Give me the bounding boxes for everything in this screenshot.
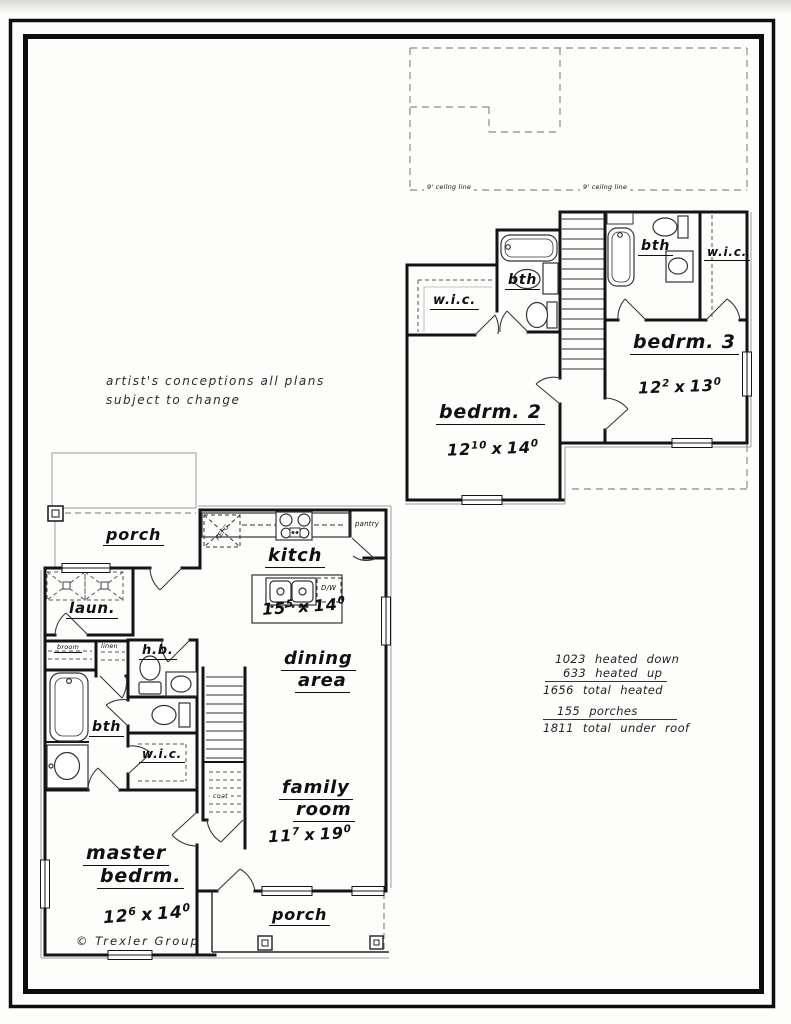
bedrm3-label: bedrm. 3 <box>630 333 739 355</box>
dim-separator: x <box>298 597 311 617</box>
family-room-label-line1: family <box>279 779 353 800</box>
bath2-label: bth <box>505 273 540 290</box>
dim-feet: 12 <box>102 906 129 928</box>
masterbath-sink <box>55 753 80 780</box>
stat-porches: 155 porches <box>543 704 689 718</box>
laundry-label: laun. <box>66 601 118 619</box>
bath-label: bth <box>89 720 124 737</box>
masterbath-tub-faucet-icon <box>67 679 72 684</box>
broom-closet-label: broom <box>54 644 82 653</box>
family-room-label-line2: room <box>293 801 355 822</box>
dim-inches: 0 <box>714 376 723 388</box>
artist-note-line2: subject to change <box>106 391 325 410</box>
masterbath-sink-faucet-icon <box>49 764 53 768</box>
stat-divider-line <box>545 681 667 682</box>
dim-feet: 14 <box>313 595 339 616</box>
stat-heated-down: 1023 heated down <box>543 652 689 666</box>
dim-inches: 2 <box>662 377 671 389</box>
lower-roof-and-offsets <box>41 453 391 958</box>
stairs-upper <box>562 219 604 369</box>
stat-heated-up: 633 heated up <box>543 666 689 680</box>
dim-inches: 6 <box>128 905 137 919</box>
master-bedroom-label-line1: master <box>83 844 169 866</box>
dim-inches: 0 <box>182 901 191 915</box>
dim-separator: x <box>141 905 154 926</box>
wic-bedrm3-label: w.i.c. <box>704 246 750 261</box>
dim-feet: 13 <box>689 376 714 396</box>
coat-closet-label: coat <box>210 793 231 800</box>
dining-label-line1: dining <box>281 650 356 671</box>
halfbath-sink <box>171 676 191 692</box>
bath3-toilet-tank <box>678 216 688 238</box>
porch-roof-outline <box>52 453 196 508</box>
bath3-toilet <box>653 218 677 236</box>
dining-label-line2: area <box>295 672 350 693</box>
master-bedroom-label-line2: bedrm. <box>97 867 184 889</box>
halfbath-label: h.b. <box>139 644 177 660</box>
wic-bedrm2-label: w.i.c. <box>430 294 479 310</box>
linen-closet-label: linen <box>101 643 118 650</box>
bath3-shelf <box>607 213 633 224</box>
bath2-vanity <box>543 263 558 294</box>
dim-feet: 12 <box>447 440 472 460</box>
bath2-toilet-tank <box>547 302 557 328</box>
dim-feet: 14 <box>506 438 531 458</box>
masterbath-toilet <box>152 706 176 725</box>
ceiling-line-label-left: 9' ceilng line <box>424 184 474 191</box>
artist-note: artist's conceptions all plans subject t… <box>106 372 325 409</box>
dim-separator: x <box>491 439 503 458</box>
wic-label: w.i.c. <box>139 748 185 763</box>
stat-total-heated: 1656 total heated <box>543 683 689 697</box>
dim-inches: 5 <box>286 598 295 611</box>
stat-divider-line <box>543 719 677 720</box>
dim-inches: 0 <box>531 437 540 449</box>
stat-total-under-roof: 1811 total under roof <box>543 721 689 735</box>
bedrm2-label: bedrm. 2 <box>436 403 545 425</box>
washer-dryer <box>47 572 123 600</box>
dishwasher-label: D/W <box>321 585 336 592</box>
bedrm2-dimensions: 1210x140 <box>447 438 540 459</box>
dim-separator: x <box>304 825 316 845</box>
copyright-notice: © Trexler Group <box>76 935 200 947</box>
bath3-sink <box>669 258 688 274</box>
area-statistics: 1023 heated down 633 heated up 1656 tota… <box>543 652 689 735</box>
bath3-tub-faucet-icon <box>618 233 623 238</box>
dim-inches: 0 <box>343 823 352 835</box>
ceiling-line-label-right: 9' ceilng line <box>580 184 630 191</box>
dim-inches: 10 <box>471 439 488 452</box>
kitchen-label: kitch <box>265 547 325 568</box>
artist-note-line1: artist's conceptions all plans <box>106 372 325 391</box>
dim-feet: 19 <box>319 823 344 843</box>
bath3-label: bth <box>638 239 673 256</box>
dim-inches: 7 <box>292 826 301 838</box>
dim-inches: 0 <box>337 594 346 607</box>
dim-feet: 11 <box>268 826 293 846</box>
dim-feet: 12 <box>638 378 663 398</box>
pantry-label: pantry <box>355 521 379 528</box>
bath2-toilet <box>527 303 548 328</box>
dim-feet: 14 <box>157 903 184 925</box>
refrigerator-label: REFG. <box>214 521 232 541</box>
floor-plan-page: REFG. artist's conceptions all plans sub… <box>0 0 791 1024</box>
porch-bottom-label: porch <box>269 907 330 926</box>
porch-top-label: porch <box>103 527 164 546</box>
dim-feet: 15 <box>261 598 287 619</box>
bedrm3-dimensions: 122x130 <box>638 377 723 398</box>
bath2-tub-faucet-icon <box>506 245 511 250</box>
porch-top-column <box>48 506 63 521</box>
stairs-lower <box>206 677 243 758</box>
masterbath-toilet-tank <box>179 703 190 727</box>
dim-separator: x <box>674 377 686 396</box>
